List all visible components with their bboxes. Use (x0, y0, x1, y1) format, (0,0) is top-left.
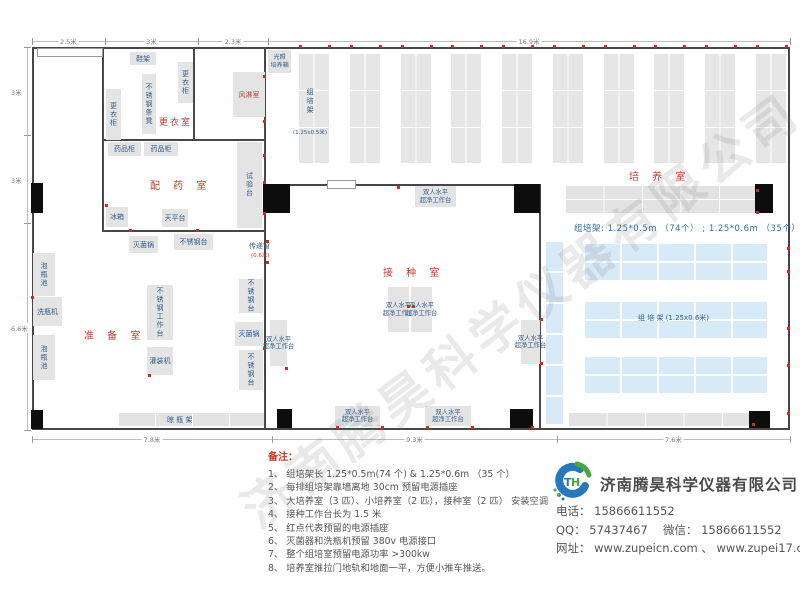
power-outlet-dot (266, 261, 269, 264)
drying-rack-label: 晾 瓶 架 (167, 415, 192, 425)
wall (32, 428, 790, 430)
culture-rack-row-top (565, 185, 756, 213)
light-incubator: 光照 培养箱 (268, 50, 291, 73)
company-name: 济南腾昊科学仪器有限公司 (600, 473, 798, 495)
dim-tick (272, 436, 273, 443)
power-outlet-dot (787, 364, 790, 367)
power-outlet-dot (787, 247, 790, 250)
dim-tick (24, 47, 31, 48)
power-outlet-dot (263, 154, 266, 157)
medicine-cabinet-1: 药品柜 (108, 142, 141, 156)
dim-label-left: 3米 (9, 87, 24, 97)
dim-label-left: 3米 (9, 175, 24, 185)
locker-right: 更衣柜 (178, 62, 193, 103)
power-outlet-dot (426, 426, 429, 429)
laminar-bench-right: 双人水平 超净工作台 (521, 320, 540, 364)
stainless-table-3: 不锈钢台 (239, 350, 263, 390)
laminar-bench-center-right-label: 双人水平 超净工作台 (399, 302, 445, 317)
power-outlet-dot (502, 45, 505, 48)
power-outlet-dot (471, 426, 474, 429)
wall (539, 184, 541, 430)
stainless-table-1: 不锈钢台 (174, 234, 213, 250)
power-outlet-dot (531, 426, 534, 429)
notes-list: 1、 组培架长 1.25*0.5m(74 个) & 1.25*0.6m （35 … (268, 468, 548, 575)
power-outlet-dot (328, 45, 331, 48)
power-outlet-dot (604, 45, 607, 48)
power-outlet-dot (540, 362, 543, 365)
door (327, 180, 356, 189)
stainless-table-2: 不锈钢台 (239, 279, 263, 313)
dim-tick (24, 430, 31, 431)
pillar (277, 409, 292, 428)
fridge: 冰箱 (106, 207, 128, 227)
dim-tick (105, 38, 106, 45)
dim-label-bottom: 7.6米 (663, 434, 684, 444)
company-contacts: 电话： 15866611552QQ： 57437467 微信： 15866611… (556, 502, 800, 558)
wall (103, 139, 265, 141)
test-bench-label: 试验台 (246, 172, 254, 198)
dim-tick (32, 38, 33, 45)
soak-pool-2: 泡瓶池 (33, 335, 55, 380)
power-outlet-dot (582, 45, 585, 48)
power-outlet-dot (531, 45, 534, 48)
culture-rack-column (349, 53, 380, 163)
soak-pool-2-label: 泡瓶池 (40, 345, 48, 371)
power-outlet-dot (705, 45, 708, 48)
company-block: T H 济南腾昊科学仪器有限公司 电话： 15866611552QQ： 5743… (548, 458, 800, 558)
power-outlet-dot (787, 412, 790, 415)
culture-rack-column (603, 53, 634, 163)
dim-label-bottom: 7.8米 (142, 434, 163, 444)
power-outlet-dot (407, 305, 410, 308)
dim-label-left: 6.6米 (9, 323, 30, 333)
laminar-bench-bottom-1: 双人水平 超净工作台 (335, 406, 380, 426)
power-outlet-dot (756, 211, 759, 214)
dim-tick (557, 436, 558, 443)
dim-label-bottom: 9.3米 (404, 434, 425, 444)
dim-label-top: 2.5米 (58, 36, 79, 46)
dim-label-top: 16.9米 (517, 36, 542, 46)
power-outlet-dot (430, 45, 433, 48)
dim-line-left (27, 47, 28, 430)
culture-rack-column (704, 53, 735, 163)
dim-label-top: 3米 (144, 36, 159, 46)
room-label-inoculation-room: 接 种 室 (383, 264, 444, 279)
fridge-label: 冰箱 (110, 213, 124, 221)
culture-rack-column (552, 53, 583, 163)
laminar-bench-bottom-2-label: 双人水平 超净工作台 (425, 409, 471, 424)
shoe-rack: 鞋架 (130, 52, 156, 65)
svg-text:H: H (571, 476, 580, 489)
notes-section: 备注： 1、 组培架长 1.25*0.5m(74 个) & 1.25*0.6m … (268, 448, 548, 575)
note-item: 5、 红点代表预留的电源插座 (268, 522, 548, 535)
locker-right-label: 更衣柜 (182, 70, 190, 96)
company-contact-line: 电话： 15866611552 (556, 502, 800, 521)
soak-pool-1-label: 泡瓶池 (40, 262, 48, 288)
sterilizer-1-label: 灭菌锅 (133, 241, 154, 249)
dim-tick (24, 223, 31, 224)
pillar (510, 409, 533, 428)
culture-rack-column (501, 53, 532, 163)
stainless-table-1-label: 不锈钢台 (180, 238, 208, 246)
laminar-bench-center-right: 双人水平 超净工作台 (411, 287, 432, 332)
notes-title: 备注： (268, 448, 548, 463)
wall (193, 47, 195, 141)
stainless-table-3-label: 不锈钢台 (247, 353, 255, 387)
power-outlet-dot (129, 229, 132, 232)
dim-tick (790, 436, 791, 443)
power-outlet-dot (787, 327, 790, 330)
stainless-table-2-label: 不锈钢台 (247, 279, 255, 313)
dim-tick (24, 135, 31, 136)
light-incubator-label: 光照 培养箱 (270, 54, 289, 69)
medicine-cabinet-2: 药品柜 (144, 142, 178, 156)
culture-rack-column (400, 53, 431, 163)
power-outlet-dot (263, 75, 266, 78)
stainless-worktable: 不锈钢工作台 (147, 285, 173, 340)
filling-machine: 灌装机 (147, 347, 173, 375)
wall (788, 47, 790, 430)
culture-rack-row-bottom (568, 412, 750, 426)
power-outlet-dot (633, 45, 636, 48)
power-outlet-dot (752, 423, 755, 426)
culture-rack-info: 组培架: 1.25*0.5m （74个） ; 1.25*0.6m （35个） (574, 222, 800, 234)
laminar-bench-left: 双人水平 超净工作台 (270, 320, 287, 366)
note-item: 3、 大培养室（3 匹）、小培养室（2 匹），接种室（2 匹） 安装空调 (268, 495, 548, 508)
transfer-window-size: (0.6米) (251, 251, 270, 259)
power-outlet-dot (540, 318, 543, 321)
culture-rack-column (450, 53, 481, 163)
pillar (263, 184, 290, 213)
sterilizer-1: 灭菌锅 (129, 236, 158, 253)
door (37, 48, 103, 57)
laminar-bench-right-label: 双人水平 超净工作台 (508, 335, 554, 350)
power-outlet-dot (263, 120, 266, 123)
laminar-bench-top: 双人水平 超净工作台 (415, 186, 456, 207)
balance-table-label: 天平台 (165, 214, 186, 222)
dim-tick (268, 38, 269, 45)
power-outlet-dot (654, 45, 657, 48)
culture-rack-column (755, 53, 786, 163)
power-outlet-dot (480, 45, 483, 48)
power-outlet-dot (263, 347, 266, 350)
laminar-bench-top-label: 双人水平 超净工作台 (413, 189, 459, 204)
power-outlet-dot (756, 45, 759, 48)
dim-tick (790, 38, 791, 45)
stainless-bench: 不锈钢条凳 (142, 74, 156, 134)
power-outlet-dot (381, 426, 384, 429)
note-item: 6、 灭菌器和洗瓶机预留 380v 电源接口 (268, 535, 548, 548)
rack-column-label: 组培架 (305, 88, 315, 115)
power-outlet-dot (397, 186, 400, 189)
stainless-worktable-label: 不锈钢工作台 (156, 287, 164, 338)
power-outlet-dot (451, 45, 454, 48)
room-label-changing-room: 更衣室 (159, 115, 192, 128)
culture-rack-column (653, 53, 684, 163)
power-outlet-dot (31, 296, 34, 299)
air-shower-label: 风淋室 (239, 91, 260, 99)
note-item: 1、 组培架长 1.25*0.5m(74 个) & 1.25*0.6m （35 … (268, 468, 548, 481)
soak-pool-1: 泡瓶池 (33, 253, 55, 296)
air-shower: 风淋室 (233, 72, 265, 117)
rack-column-size: (1.25x0.5米) (293, 128, 327, 136)
stainless-bench-label: 不锈钢条凳 (145, 83, 153, 126)
power-outlet-dot (196, 229, 199, 232)
shoe-rack-label: 鞋架 (136, 55, 150, 63)
note-item: 2、 每排组培架靠墙离地 30cm 预留电源插座 (268, 481, 548, 494)
power-outlet-dot (379, 45, 382, 48)
power-outlet-dot (787, 270, 790, 273)
medicine-cabinet-1-label: 药品柜 (114, 145, 135, 153)
company-logo: T H (550, 460, 594, 504)
power-outlet-dot (734, 45, 737, 48)
power-outlet-dot (756, 189, 759, 192)
bottle-washer-label: 洗瓶机 (37, 308, 58, 316)
power-outlet-dot (299, 45, 302, 48)
power-outlet-dot (553, 45, 556, 48)
power-outlet-dot (336, 426, 339, 429)
dim-tick (32, 436, 33, 443)
power-outlet-dot (683, 45, 686, 48)
note-item: 4、 接种工作台长为 1.5 米 (268, 508, 548, 521)
dim-tick (198, 38, 199, 45)
wall (32, 47, 790, 49)
room-label-dispensing-room: 配 药 室 (150, 177, 211, 192)
blue-rack-row-3 (583, 355, 767, 393)
blue-rack-row-1 (583, 242, 767, 280)
medicine-cabinet-2-label: 药品柜 (151, 145, 172, 153)
blue-rack-vertical (546, 240, 563, 424)
power-outlet-dot (412, 305, 415, 308)
power-outlet-dot (285, 367, 288, 370)
room-label-prep-room: 准 备 室 (84, 327, 145, 342)
power-outlet-dot (148, 374, 151, 377)
company-contact-line: QQ： 57437467 微信： 15866611552 (556, 521, 800, 540)
wall (103, 230, 265, 232)
test-bench: 试验台 (237, 142, 262, 228)
locker-left: 更衣柜 (106, 89, 121, 140)
note-item: 7、 整个组培室预留电源功率 >300kw (268, 548, 548, 561)
room-label-culture-room: 培 养 室 (629, 168, 690, 183)
laminar-bench-bottom-1-label: 双人水平 超净工作台 (335, 409, 381, 424)
note-item: 8、 培养室推拉门地轨和地面一平，方便小推车推送。 (268, 562, 548, 575)
dim-label-top: 2.3米 (223, 36, 244, 46)
pillar (31, 183, 43, 213)
power-outlet-dot (401, 45, 404, 48)
blue-rack-label: 组 培 架 (1.25x0.6米) (638, 313, 709, 323)
power-outlet-dot (263, 212, 266, 215)
filling-machine-label: 灌装机 (150, 357, 171, 365)
pillar (31, 410, 43, 429)
power-outlet-dot (266, 240, 269, 243)
bottle-washer: 洗瓶机 (33, 297, 62, 326)
wall (264, 184, 541, 186)
power-outlet-dot (263, 181, 266, 184)
power-outlet-dot (785, 45, 788, 48)
balance-table: 天平台 (162, 209, 188, 227)
company-contact-line: 网址： www.zupeicn.com 、 www.zupei17.com (556, 539, 800, 558)
locker-left-label: 更衣柜 (110, 102, 118, 128)
power-outlet-dot (105, 204, 108, 207)
laminar-bench-bottom-2: 双人水平 超净工作台 (425, 406, 471, 426)
power-outlet-dot (350, 45, 353, 48)
pillar (514, 184, 540, 213)
